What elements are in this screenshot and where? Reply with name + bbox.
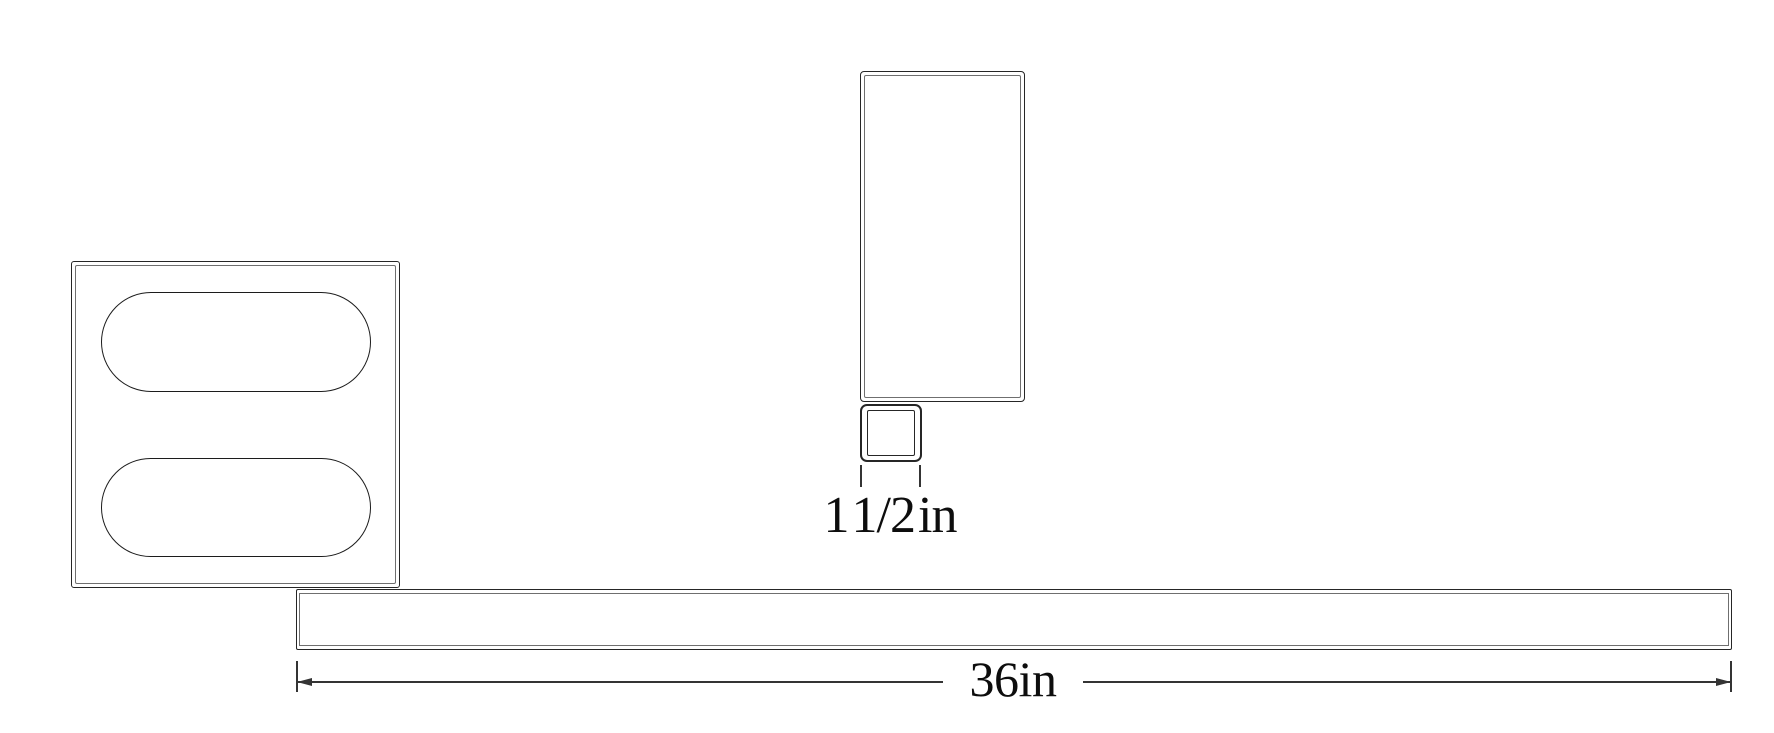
cad-drawing-canvas: 1 1/2 in 36in	[0, 0, 1774, 733]
dimension-label-bar-length: 36in	[943, 654, 1083, 704]
dimension-label-tube-width: 1 1/2 in	[818, 490, 962, 542]
plate-slot-bottom	[101, 458, 371, 557]
extension-line-tube-left	[860, 465, 862, 487]
dimension-arrow-left	[297, 678, 312, 686]
dimension-line-left-segment	[297, 681, 962, 683]
extension-line-bar-left	[296, 661, 298, 692]
plate-slot-top	[101, 292, 371, 392]
dimension-line-right-segment	[1064, 681, 1731, 683]
dimension-arrow-right	[1716, 678, 1731, 686]
bar-inner-edge	[299, 593, 1729, 646]
vertical-tube-inner-edge	[864, 75, 1021, 398]
tube-section-bore	[867, 410, 915, 456]
extension-line-bar-right	[1730, 661, 1732, 692]
extension-line-tube-right	[919, 465, 921, 487]
